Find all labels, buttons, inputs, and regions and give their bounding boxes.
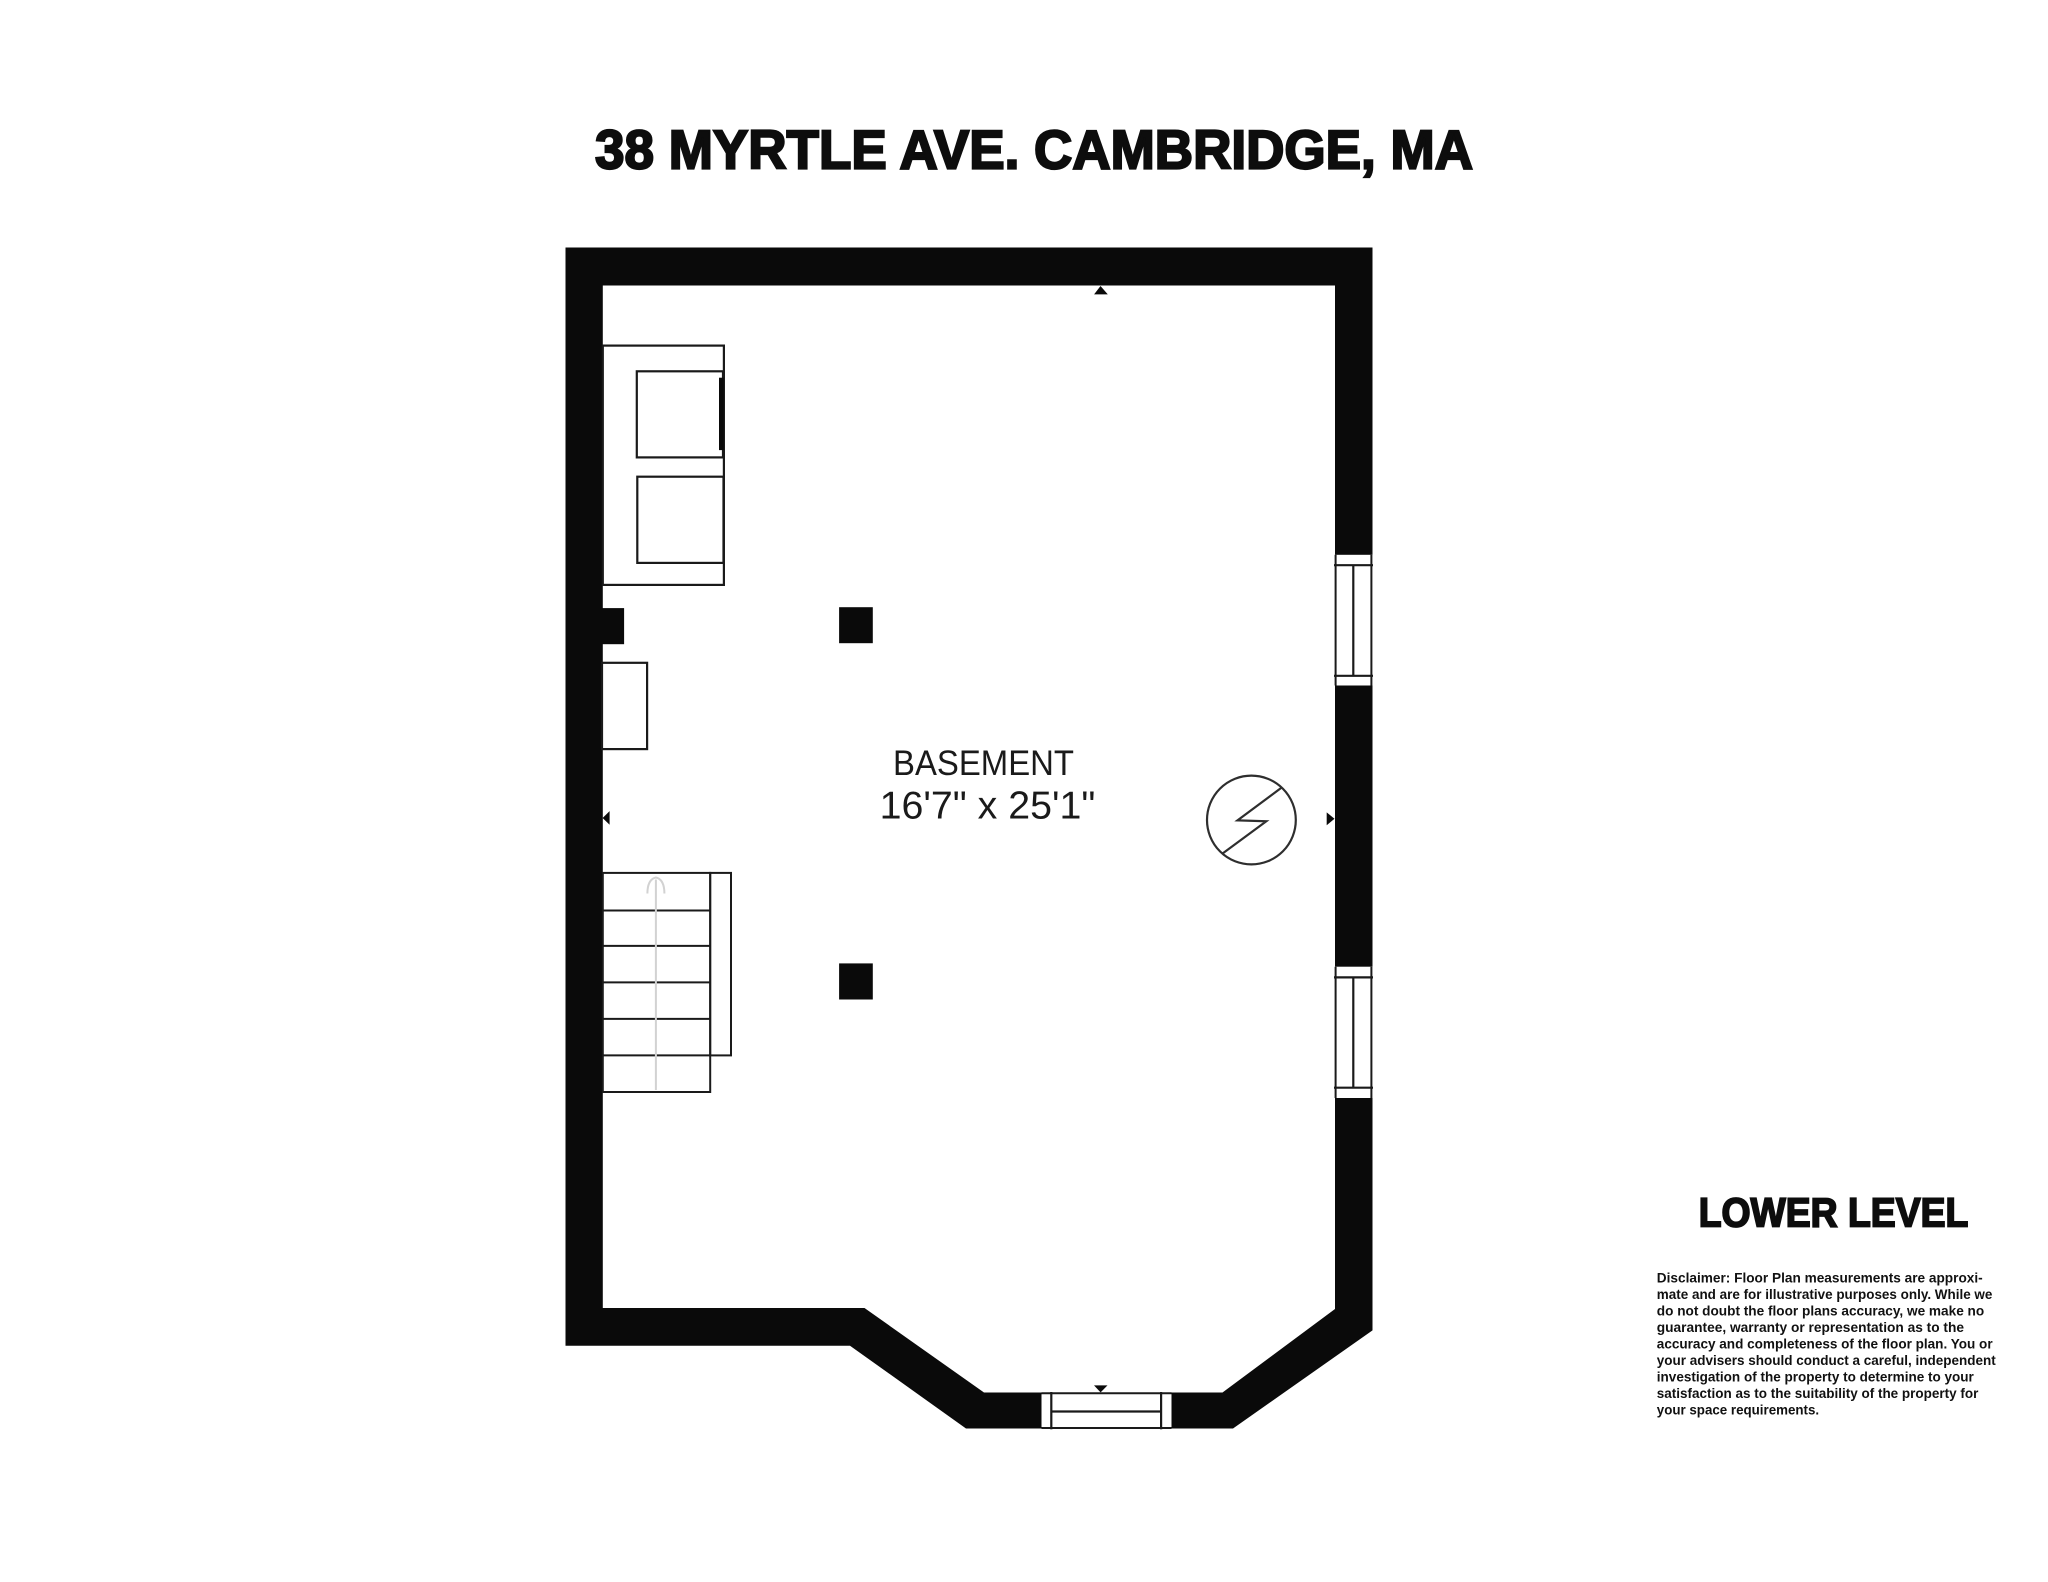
svg-text:16'7" x 25'1": 16'7" x 25'1"	[880, 785, 1096, 828]
svg-text:guarantee, warranty or represe: guarantee, warranty or representation as…	[1657, 1319, 1964, 1335]
svg-text:satisfaction as to the suitabi: satisfaction as to the suitability of th…	[1657, 1385, 1979, 1401]
svg-text:LOWER LEVEL: LOWER LEVEL	[1699, 1190, 1969, 1236]
svg-text:BASEMENT: BASEMENT	[893, 744, 1074, 783]
svg-text:do not doubt the floor plans a: do not doubt the floor plans accuracy, w…	[1657, 1303, 1984, 1319]
svg-text:Disclaimer: Floor Plan measure: Disclaimer: Floor Plan measurements are …	[1657, 1270, 1983, 1286]
svg-text:your advisers should conduct a: your advisers should conduct a careful, …	[1657, 1352, 1996, 1368]
svg-text:mate and are for illustrative: mate and are for illustrative purposes o…	[1657, 1286, 1993, 1302]
svg-text:accuracy and completeness of t: accuracy and completeness of the floor p…	[1657, 1336, 1993, 1352]
svg-text:investigation of the property: investigation of the property to determi…	[1657, 1369, 1975, 1385]
svg-text:38 MYRTLE AVE. CAMBRIDGE, MA: 38 MYRTLE AVE. CAMBRIDGE, MA	[595, 118, 1473, 180]
svg-text:your space requirements.: your space requirements.	[1657, 1402, 1819, 1418]
